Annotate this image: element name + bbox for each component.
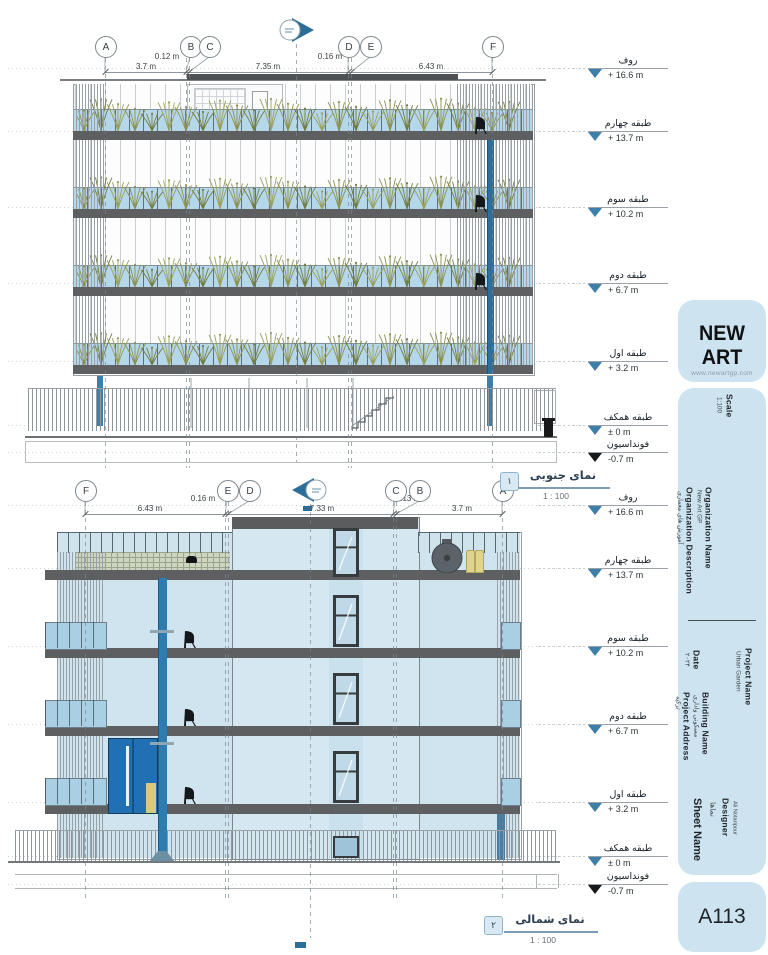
level-label: فونداسیون xyxy=(586,439,670,450)
grid-bubble: A xyxy=(95,36,117,58)
level-label: طبقه چهارم xyxy=(586,555,670,566)
dimension-label: 3.7 m xyxy=(136,62,156,71)
grid-bubble: E xyxy=(217,480,239,502)
level-triangle-icon xyxy=(588,426,602,435)
level-value: + 10.2 m xyxy=(608,648,643,658)
grid-bubble: C xyxy=(385,480,407,502)
tower-roof-band xyxy=(232,517,418,529)
sheet-name-label: Sheet Name xyxy=(691,798,702,861)
gas-cylinder-icon xyxy=(475,550,484,573)
view-title-rule xyxy=(504,931,598,933)
level-label: طبقه سوم xyxy=(586,633,670,644)
level-triangle-icon xyxy=(588,803,602,812)
level-triangle-icon xyxy=(588,857,602,866)
floor-slab xyxy=(45,648,520,658)
level-label: طبقه دوم xyxy=(586,270,670,281)
sheet-number-box: A113 xyxy=(678,882,766,952)
dimension-label: 7.33 m xyxy=(310,504,334,513)
title-block-divider xyxy=(688,620,756,621)
level-label: طبقه همکف xyxy=(586,412,670,423)
site-fence xyxy=(15,830,556,863)
level-triangle-icon xyxy=(588,506,602,515)
grid-bubble: D xyxy=(338,36,360,58)
level-value: -0.7 m xyxy=(608,454,634,464)
project-address-value: ترکیه xyxy=(674,696,680,710)
level-leader xyxy=(538,568,586,569)
level-value: + 3.2 m xyxy=(608,363,638,373)
level-value: ± 0 m xyxy=(608,858,630,868)
balcony-posts-icon xyxy=(45,622,105,648)
elevator-door xyxy=(108,738,158,814)
view-scale: 1 : 100 xyxy=(530,935,556,945)
level-value: + 6.7 m xyxy=(608,285,638,295)
level-label: طبقه دوم xyxy=(586,711,670,722)
project-name-value: Urban Garden xyxy=(734,651,740,692)
water-tank-icon xyxy=(429,539,465,573)
project-address-label: Project Address xyxy=(682,692,691,761)
balcony-glass xyxy=(501,700,521,728)
level-label: روف xyxy=(586,55,670,66)
level-leader xyxy=(538,646,586,647)
ground-line xyxy=(8,861,560,863)
grid-bubble: F xyxy=(75,480,97,502)
level-triangle-icon xyxy=(588,362,602,371)
level-triangle-icon xyxy=(588,453,602,462)
level-guide xyxy=(8,884,588,885)
level-label: طبقه سوم xyxy=(586,194,670,205)
view-title-rule xyxy=(518,487,610,489)
dimension-line xyxy=(105,72,492,73)
balcony-posts-icon xyxy=(45,700,105,726)
dimension-label: 3.7 m xyxy=(452,504,472,513)
level-value: + 3.2 m xyxy=(608,804,638,814)
view-title: نمای جنوبی xyxy=(518,468,608,482)
date-label: Date xyxy=(692,650,701,669)
section-marker-icon xyxy=(288,477,332,503)
grid-line xyxy=(393,502,394,900)
tower-window xyxy=(333,595,359,647)
balcony-glass xyxy=(501,778,521,806)
designer-label: Designer xyxy=(721,798,730,836)
level-triangle-icon xyxy=(588,208,602,217)
level-label: روف xyxy=(586,492,670,503)
dimension-label: 0.16 m xyxy=(191,494,215,503)
section-line xyxy=(310,504,311,938)
level-label: طبقه چهارم xyxy=(586,118,670,129)
grid-line xyxy=(228,502,229,900)
section-break-icon xyxy=(295,942,306,948)
level-label: فونداسیون xyxy=(586,871,670,882)
project-name-label: Project Name xyxy=(744,648,753,705)
railing-posts-icon xyxy=(57,532,232,553)
grid-bubble: C xyxy=(199,36,221,58)
level-value: + 16.6 m xyxy=(608,507,643,517)
dimension-label: 6.43 m xyxy=(419,62,443,71)
view-title: نمای شمالی xyxy=(504,912,596,926)
designer-value: Ali Notaripour xyxy=(731,801,737,835)
level-label: طبقه اول xyxy=(586,348,670,359)
level-value: ± 0 m xyxy=(608,427,630,437)
foundation-line xyxy=(15,888,557,889)
level-triangle-icon xyxy=(588,885,602,894)
level-value: -0.7 m xyxy=(608,886,634,896)
foundation-line xyxy=(15,874,557,875)
level-triangle-icon xyxy=(588,69,602,78)
dimension-label: 0.16 m xyxy=(318,52,342,61)
grid-bubble: D xyxy=(239,480,261,502)
level-label: طبقه همکف xyxy=(586,843,670,854)
level-triangle-icon xyxy=(588,647,602,656)
level-leader xyxy=(538,802,586,803)
floor-slab xyxy=(45,726,520,736)
tower-window xyxy=(333,751,359,803)
sheet-name-value: نماها xyxy=(709,802,717,817)
pipe-crossbar xyxy=(150,630,174,633)
chair-icon xyxy=(182,787,197,804)
gas-cylinder-icon xyxy=(466,550,475,573)
level-triangle-icon xyxy=(588,569,602,578)
cat-icon xyxy=(186,556,197,563)
balcony-posts-icon xyxy=(45,778,105,804)
view-number-badge: ۲ xyxy=(484,916,503,935)
drawing-sheet: ABCDEF3.7 m0.12 m7.35 m0.16 m6.43 mروف+ … xyxy=(0,0,768,955)
chair-icon xyxy=(182,631,197,648)
dimension-label: 7.35 m xyxy=(256,62,280,71)
grid-line xyxy=(396,502,397,900)
level-value: + 10.2 m xyxy=(608,209,643,219)
balcony-glass xyxy=(501,622,521,650)
level-triangle-icon xyxy=(588,132,602,141)
foundation-tick-box xyxy=(536,874,559,888)
level-leader xyxy=(538,724,586,725)
grid-bubble: B xyxy=(409,480,431,502)
grid-line xyxy=(225,502,226,900)
level-triangle-icon xyxy=(588,284,602,293)
section-break-icon xyxy=(303,506,312,511)
view-number-badge: ۱ xyxy=(500,472,519,491)
dimension-label: 0.12 m xyxy=(155,52,179,61)
section-marker-icon xyxy=(274,17,318,43)
tower-entry-door xyxy=(333,836,359,858)
level-value: + 16.6 m xyxy=(608,70,643,80)
building-name-label: Building Name xyxy=(701,692,710,755)
dimension-label: 6.43 m xyxy=(138,504,162,513)
level-value: + 13.7 m xyxy=(608,133,643,143)
grid-line xyxy=(85,502,86,900)
tower-window xyxy=(333,673,359,725)
sheet-number: A113 xyxy=(678,882,766,952)
building-name-value: مسکونی واداری xyxy=(692,695,698,737)
level-triangle-icon xyxy=(588,725,602,734)
level-value: + 13.7 m xyxy=(608,570,643,580)
level-value: + 6.7 m xyxy=(608,726,638,736)
tower-window xyxy=(333,528,359,577)
riser-pipe xyxy=(158,578,167,860)
grid-bubble: E xyxy=(360,36,382,58)
date-value: ۲۰۲۴ xyxy=(683,653,689,667)
level-label: طبقه اول xyxy=(586,789,670,800)
chair-icon xyxy=(182,709,197,726)
pipe-crossbar xyxy=(150,742,174,745)
grid-line xyxy=(502,502,503,900)
grid-bubble: F xyxy=(482,36,504,58)
dimension-line xyxy=(85,514,502,515)
view-scale: 1 : 100 xyxy=(543,491,569,501)
